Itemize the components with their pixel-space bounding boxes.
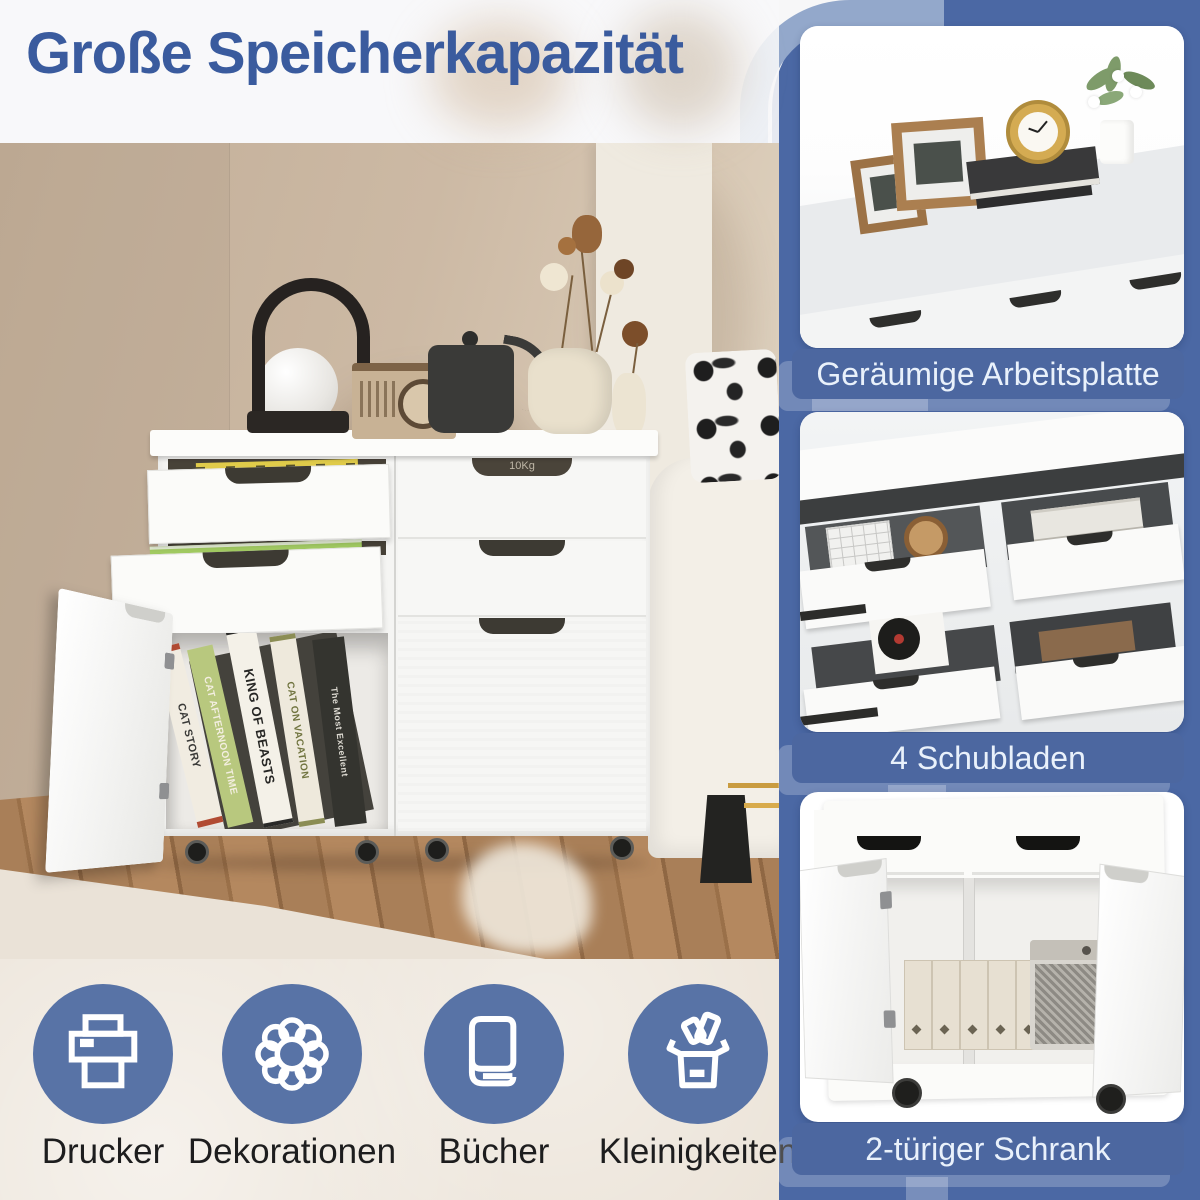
open-door-left (800, 858, 894, 1083)
feature-printer: Drucker (3, 984, 203, 1172)
drawer-handle-cutout (1016, 836, 1080, 850)
clock-hand (1028, 128, 1038, 133)
caster-wheel (425, 838, 449, 862)
caster-wheel (355, 840, 379, 864)
coffee-table (728, 783, 779, 862)
record-label (894, 634, 904, 644)
lamp-base (247, 411, 349, 433)
file-box (932, 960, 960, 1050)
sofa-cushion (685, 349, 779, 484)
caption-doors: 2-türiger Schrank (792, 1123, 1184, 1175)
page-title: Große Speicherkapazität (26, 20, 683, 87)
ceramic-vase (528, 348, 612, 434)
coffee-table-shelf (744, 803, 779, 808)
caster-wheel (892, 1078, 922, 1108)
drawer-handle-cutout (203, 550, 290, 569)
main-photo: CAT STORY CAT AFTERNOON TIME KING OF BEA… (0, 143, 779, 959)
white-flower (1130, 86, 1142, 98)
open-cabinet-door (45, 588, 173, 873)
alarm-clock (1006, 100, 1070, 164)
product-infographic: Große Speicherkapazität CAT STORY CAT AF… (0, 0, 1200, 1200)
dried-flower (572, 215, 602, 253)
door-hinge (880, 891, 892, 909)
gift-box-icon (628, 984, 768, 1124)
clock-hand (1037, 121, 1048, 133)
printer-icon (33, 984, 173, 1124)
clock-face (1018, 112, 1058, 152)
cabinet-divider (394, 456, 396, 836)
feature-books: Bücher (398, 984, 590, 1172)
feature-label: Bücher (439, 1132, 550, 1172)
flower-vase (1100, 120, 1134, 164)
file-box (960, 960, 988, 1050)
feature-label: Drucker (42, 1132, 165, 1172)
speaker-knob (1082, 946, 1091, 955)
right-door (398, 619, 646, 831)
white-flower (1112, 70, 1124, 82)
file-box (988, 960, 1016, 1050)
feature-card-drawers (800, 412, 1184, 732)
flower-icon (222, 984, 362, 1124)
feature-label: Kleinigkeiten (599, 1132, 797, 1172)
caption-drawers: 4 Schubladen (792, 733, 1184, 783)
open-drawer-top (147, 464, 391, 544)
frame-photo (913, 141, 963, 185)
dried-flower-ball (622, 321, 648, 347)
drawer-handle-cutout (479, 540, 565, 556)
caster-wheel (610, 836, 634, 860)
capacity-marking: 10Kg (472, 458, 572, 476)
drawer-handle-cutout (225, 466, 311, 484)
feature-decorations: Dekorationen (186, 984, 398, 1172)
feature-label: Dekorationen (188, 1132, 396, 1172)
radio-speaker-grille (360, 381, 400, 417)
gooseneck-kettle (428, 345, 514, 433)
storage-ideas-strip: Drucker Dekorationen (0, 959, 779, 1200)
door-hinge (159, 783, 169, 799)
door-hinge (164, 652, 174, 669)
dried-flower (614, 259, 634, 279)
feature-card-doors (800, 792, 1184, 1122)
caption-worktop: Geräumige Arbeitsplatte (792, 349, 1184, 399)
open-compartment: CAT STORY CAT AFTERNOON TIME KING OF BEA… (166, 633, 388, 829)
feature-card-worktop (800, 26, 1184, 348)
drawer-handle-cutout (857, 836, 921, 850)
door-handle-cutout (479, 618, 565, 634)
dried-flower (558, 237, 576, 255)
right-drawer-top: 10Kg (398, 459, 646, 539)
white-flower (1088, 96, 1100, 108)
door-hinge (884, 1010, 896, 1027)
caster-wheel (1096, 1084, 1126, 1114)
file-box (904, 960, 932, 1050)
right-drawer-bottom (398, 541, 646, 617)
caster-wheel (185, 840, 209, 864)
dried-flower (540, 263, 568, 291)
open-door-right (1092, 864, 1184, 1098)
book-icon (424, 984, 564, 1124)
